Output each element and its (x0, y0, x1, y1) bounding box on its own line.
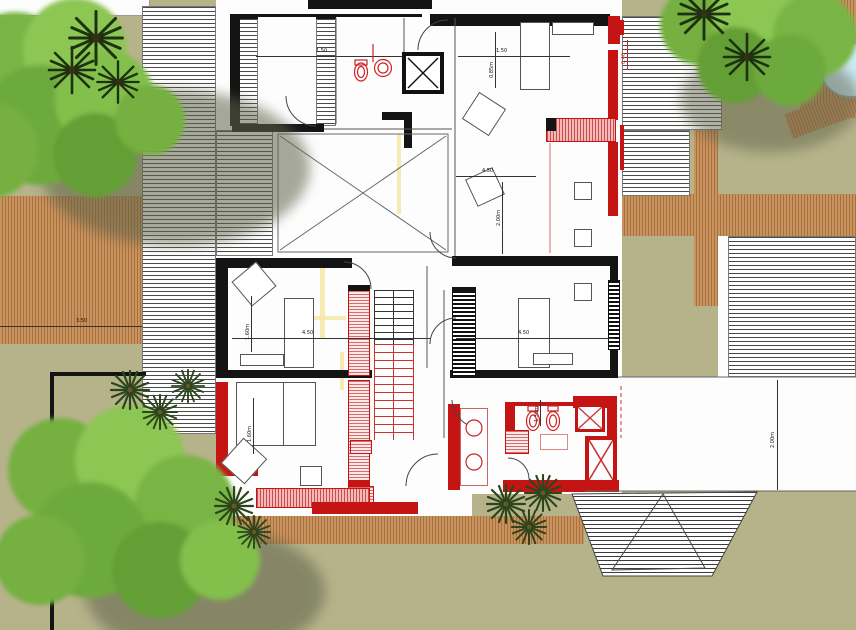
dimension-label: 1.50 (496, 49, 507, 54)
wall-top (308, 0, 432, 9)
hatch-x-room-left (216, 130, 273, 256)
red-wall-top-corner (608, 16, 620, 44)
palm-icon (724, 34, 770, 80)
wall-mid-right (452, 256, 618, 266)
dimension-line (251, 296, 252, 352)
dimension-label: 0.85m (490, 62, 495, 78)
balcony-end-cap (546, 118, 556, 131)
balcony-planter (546, 118, 616, 142)
dimension-line (458, 56, 570, 57)
dimension-line (256, 56, 424, 57)
property-line-v (50, 372, 54, 630)
property-line-h (50, 372, 146, 376)
bath-wall-left (448, 404, 460, 490)
low-cabinet (240, 354, 284, 366)
stair-railing-lower (348, 380, 370, 484)
dimension-label: 2.00m (771, 432, 776, 448)
dimension-line-red (627, 40, 628, 70)
wall-l-corner-v (404, 112, 412, 148)
roof-deck-left-band (142, 6, 216, 434)
wall-mid-left (216, 258, 352, 268)
red-thin-line (549, 143, 551, 253)
stair-lower-flight (374, 344, 414, 440)
wall-left-mid (216, 258, 228, 370)
nightstand (574, 182, 592, 200)
bath-steps (505, 430, 529, 454)
trapezoid-deck (572, 492, 757, 576)
nightstand (574, 229, 592, 247)
dimension-line (495, 32, 496, 88)
louver-cap (452, 287, 476, 292)
right-white-band (618, 377, 856, 491)
red-wall-bottom (312, 502, 418, 514)
dimension-line (456, 338, 614, 339)
stair-stringer-lower (393, 344, 394, 440)
stair-stringer-upper (393, 290, 394, 344)
louver-stair-right (452, 290, 476, 376)
dimension-line (253, 398, 254, 454)
dimension-label: 3.50 (76, 319, 87, 324)
nightstand (574, 283, 592, 301)
red-wall-below-balcony (608, 142, 618, 216)
shower (575, 404, 605, 432)
paper-top-left-strip (0, 0, 150, 16)
wall-left-upper (230, 14, 240, 126)
side-table (300, 466, 322, 486)
dimension-label: 4.50 (518, 331, 529, 336)
vanity-counter (460, 408, 488, 486)
washer (540, 434, 568, 450)
low-cabinet (533, 353, 573, 365)
deck-edge-red-tick (620, 20, 624, 35)
dimension-label: 1.30m (535, 406, 540, 422)
dimension-line (0, 326, 142, 327)
dimension-line (456, 176, 536, 177)
stair-railing-cap (348, 285, 370, 291)
roof-deck-right (728, 236, 856, 377)
red-wall-right-upper (608, 50, 618, 120)
wall-x-room-top (232, 124, 324, 132)
palm-icon (97, 61, 138, 102)
bed-divider (283, 382, 284, 446)
deck-edge-red-tick (620, 125, 624, 170)
stair-upper-flight (374, 290, 414, 344)
louver-right (608, 280, 620, 350)
dimension-label: 1.60m (246, 324, 251, 340)
elevator-shaft (585, 436, 617, 484)
shelf (552, 22, 594, 35)
wood-deck-right-band (622, 194, 856, 236)
dimension-label: 1.50 (316, 49, 327, 54)
pergola-cap (238, 14, 258, 19)
dimension-line (232, 338, 430, 339)
paper-edge-line (0, 15, 150, 16)
roof-deck-topright-2 (622, 130, 690, 196)
floor-plan-canvas: 3.50 4.50 4.50 4.50 2.00m 1.60m 1.60m 2.… (0, 0, 856, 630)
wood-deck-bottom-strip (148, 516, 584, 544)
pergola-cap (316, 14, 336, 19)
wood-deck-right-column (694, 130, 718, 306)
dimension-line (540, 400, 541, 426)
wood-deck-left (0, 196, 142, 344)
palm-icon (49, 47, 95, 93)
underlay-line (397, 134, 401, 214)
dimension-label: 1.60m (248, 426, 253, 442)
pergola-strip-2 (316, 18, 336, 126)
red-wall-left-lower (216, 382, 228, 466)
roof-deck-topright-1 (622, 16, 722, 130)
pergola-strip-1 (238, 18, 258, 126)
dimension-line (502, 182, 503, 254)
dimension-label: 4.50 (302, 331, 313, 336)
stair-railing-upper (348, 290, 370, 376)
palm-icon (70, 12, 123, 65)
underlay-line (320, 268, 325, 338)
dimension-line (777, 380, 778, 490)
deck-gap (718, 236, 728, 377)
dimension-label: 2.00m (497, 210, 502, 226)
dimension-label: 4.50 (482, 169, 493, 174)
red-step-block (350, 440, 372, 454)
dimension-label: 0.40 (622, 53, 627, 64)
